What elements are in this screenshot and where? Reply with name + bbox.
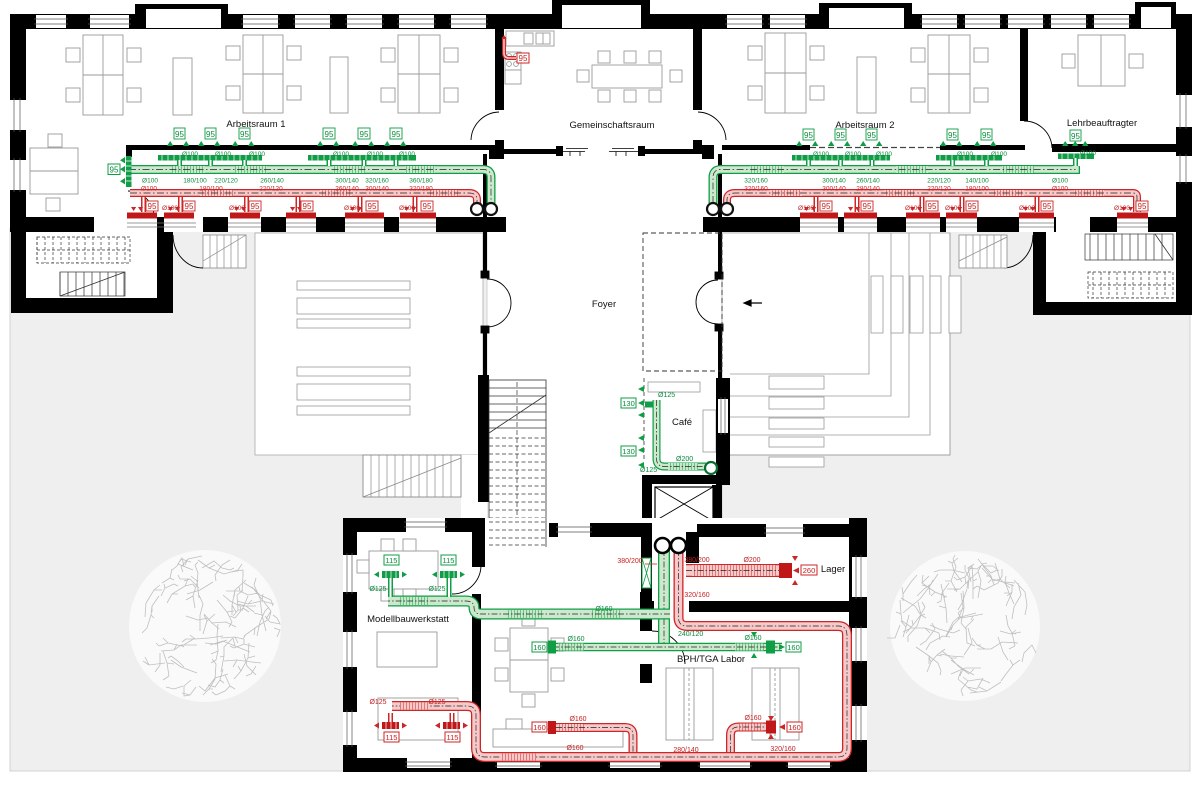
svg-text:Ø125: Ø125	[428, 699, 445, 706]
svg-text:95: 95	[519, 54, 528, 63]
svg-text:Ø100: Ø100	[367, 151, 383, 158]
svg-text:160: 160	[533, 723, 546, 732]
svg-text:180/100: 180/100	[199, 186, 223, 193]
svg-text:180/100: 180/100	[183, 178, 207, 185]
svg-text:Modellbauwerkstatt: Modellbauwerkstatt	[367, 614, 449, 625]
svg-text:Ø100: Ø100	[141, 186, 157, 193]
svg-text:Ø100: Ø100	[945, 205, 961, 212]
svg-text:115: 115	[386, 733, 398, 742]
svg-text:95: 95	[423, 202, 432, 211]
svg-text:95: 95	[110, 166, 119, 175]
svg-text:95: 95	[392, 130, 401, 139]
svg-text:Ø125: Ø125	[369, 699, 386, 706]
svg-text:95: 95	[251, 202, 260, 211]
svg-text:Ø100: Ø100	[957, 151, 973, 158]
svg-text:Ø125: Ø125	[640, 467, 657, 474]
svg-text:Ø100: Ø100	[813, 151, 829, 158]
svg-text:Ø100: Ø100	[1114, 205, 1130, 212]
svg-text:Gemeinschaftsraum: Gemeinschaftsraum	[569, 120, 654, 131]
svg-text:Ø100: Ø100	[991, 151, 1007, 158]
svg-text:260: 260	[803, 566, 816, 575]
svg-text:Lehrbeauftragter: Lehrbeauftragter	[1067, 118, 1137, 129]
svg-text:95: 95	[867, 131, 876, 140]
svg-text:Ø100: Ø100	[249, 151, 265, 158]
svg-text:Ø100: Ø100	[1052, 178, 1068, 185]
svg-text:260/140: 260/140	[856, 178, 880, 185]
svg-text:Ø100: Ø100	[333, 151, 349, 158]
svg-text:Ø200: Ø200	[743, 557, 760, 564]
svg-text:Ø100: Ø100	[1019, 205, 1035, 212]
svg-text:Ø100: Ø100	[229, 205, 245, 212]
svg-text:Arbeitsraum 1: Arbeitsraum 1	[226, 119, 285, 130]
svg-text:BPH/TGA Labor: BPH/TGA Labor	[677, 654, 745, 665]
svg-text:95: 95	[325, 130, 334, 139]
svg-text:95: 95	[968, 202, 977, 211]
svg-text:Ø100: Ø100	[798, 205, 814, 212]
svg-text:Ø160: Ø160	[569, 716, 586, 723]
svg-text:300/140: 300/140	[822, 186, 846, 193]
svg-text:Ø100: Ø100	[845, 151, 861, 158]
svg-text:95: 95	[822, 202, 831, 211]
svg-text:95: 95	[206, 130, 215, 139]
svg-text:115: 115	[443, 556, 455, 565]
svg-text:220/120: 220/120	[259, 186, 283, 193]
svg-text:Ø160: Ø160	[595, 606, 612, 613]
svg-text:220/120: 220/120	[214, 178, 238, 185]
svg-text:320/160: 320/160	[744, 178, 768, 185]
svg-text:160: 160	[787, 643, 800, 652]
svg-text:Ø100: Ø100	[162, 205, 178, 212]
svg-text:95: 95	[240, 130, 249, 139]
svg-text:95: 95	[836, 131, 845, 140]
svg-text:Ø100: Ø100	[142, 178, 158, 185]
svg-text:320/160: 320/160	[365, 178, 389, 185]
svg-text:95: 95	[148, 202, 157, 211]
svg-text:380/200: 380/200	[684, 557, 709, 564]
svg-text:160: 160	[788, 723, 801, 732]
svg-text:280/140: 280/140	[673, 747, 698, 754]
svg-text:220/120: 220/120	[927, 178, 951, 185]
svg-text:Ø160: Ø160	[566, 745, 583, 752]
svg-text:115: 115	[386, 556, 398, 565]
svg-text:280/140: 280/140	[856, 186, 880, 193]
svg-text:Ø125: Ø125	[658, 392, 675, 399]
svg-text:140/100: 140/100	[965, 178, 989, 185]
svg-text:180/100: 180/100	[965, 186, 989, 193]
svg-text:Lager: Lager	[821, 564, 845, 575]
svg-text:300/140: 300/140	[335, 178, 359, 185]
svg-text:95: 95	[185, 202, 194, 211]
svg-text:95: 95	[1138, 202, 1147, 211]
svg-text:Ø100: Ø100	[1080, 150, 1096, 157]
svg-text:Café: Café	[672, 417, 692, 428]
svg-text:Ø160: Ø160	[744, 715, 761, 722]
svg-text:95: 95	[948, 131, 957, 140]
svg-text:115: 115	[447, 733, 459, 742]
svg-text:95: 95	[175, 130, 184, 139]
svg-text:95: 95	[1071, 132, 1080, 141]
svg-text:Foyer: Foyer	[592, 299, 616, 310]
svg-text:Ø160: Ø160	[567, 636, 584, 643]
svg-text:95: 95	[360, 130, 369, 139]
svg-text:95: 95	[804, 131, 813, 140]
svg-text:95: 95	[863, 202, 872, 211]
svg-text:Ø125: Ø125	[428, 586, 445, 593]
svg-text:320/160: 320/160	[744, 186, 768, 193]
svg-text:Ø100: Ø100	[182, 151, 198, 158]
svg-text:Ø125: Ø125	[369, 586, 386, 593]
svg-text:320/180: 320/180	[409, 186, 433, 193]
svg-text:95: 95	[928, 202, 937, 211]
svg-text:95: 95	[982, 131, 991, 140]
svg-text:Ø100: Ø100	[344, 205, 360, 212]
svg-text:320/160: 320/160	[770, 746, 795, 753]
svg-text:Ø100: Ø100	[905, 205, 921, 212]
svg-text:160: 160	[533, 643, 546, 652]
svg-text:95: 95	[303, 202, 312, 211]
svg-text:360/180: 360/180	[409, 178, 433, 185]
svg-text:Ø100: Ø100	[399, 151, 415, 158]
svg-text:Ø100: Ø100	[1052, 186, 1068, 193]
svg-text:Ø160: Ø160	[744, 635, 761, 642]
svg-text:260/140: 260/140	[335, 186, 359, 193]
svg-text:95: 95	[368, 202, 377, 211]
svg-text:Ø200: Ø200	[676, 456, 693, 463]
svg-text:300/140: 300/140	[822, 178, 846, 185]
svg-text:130: 130	[622, 399, 635, 408]
svg-text:260/140: 260/140	[260, 178, 284, 185]
svg-text:300/140: 300/140	[365, 186, 389, 193]
svg-text:Ø100: Ø100	[215, 151, 231, 158]
svg-text:95: 95	[1043, 202, 1052, 211]
svg-text:Ø100: Ø100	[876, 151, 892, 158]
svg-text:130: 130	[622, 447, 635, 456]
svg-text:220/120: 220/120	[927, 186, 951, 193]
svg-text:Ø100: Ø100	[399, 205, 415, 212]
svg-text:380/200: 380/200	[617, 558, 642, 565]
svg-text:240/120: 240/120	[678, 631, 703, 638]
svg-text:320/160: 320/160	[684, 592, 709, 599]
